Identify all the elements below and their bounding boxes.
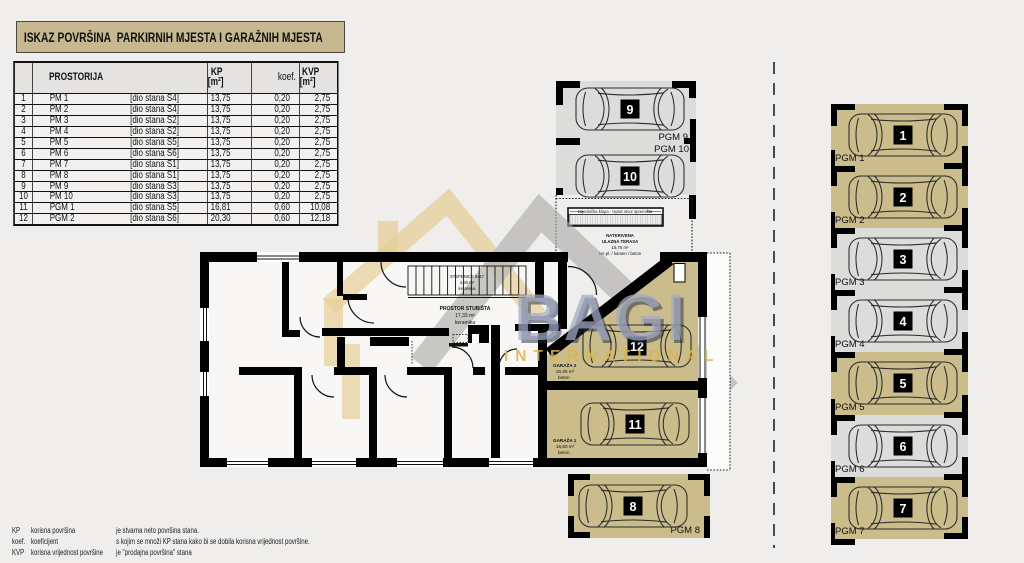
svg-text:ker.pl. / kamen / beton: ker.pl. / kamen / beton <box>599 251 642 256</box>
svg-text:16,80 m²: 16,80 m² <box>556 444 575 449</box>
svg-text:11: 11 <box>628 418 641 432</box>
svg-text:PGM 10: PGM 10 <box>654 144 689 155</box>
svg-text:PGM 1: PGM 1 <box>835 153 865 164</box>
svg-text:GARAŽA 1: GARAŽA 1 <box>553 436 577 443</box>
svg-text:NATKRIVENA: NATKRIVENA <box>606 233 634 238</box>
svg-text:17,33 m²: 17,33 m² <box>455 313 475 319</box>
svg-text:8: 8 <box>630 500 637 514</box>
svg-text:6: 6 <box>900 440 907 454</box>
svg-text:keramika: keramika <box>455 320 476 326</box>
svg-text:20,35 m²: 20,35 m² <box>556 369 575 374</box>
svg-text:16,76 m²: 16,76 m² <box>612 245 630 250</box>
svg-text:9: 9 <box>627 103 634 117</box>
svg-text:STEPENICE 9x17: STEPENICE 9x17 <box>450 274 485 279</box>
svg-text:5: 5 <box>900 377 907 391</box>
svg-text:INTERNATIONAL: INTERNATIONAL <box>504 348 720 365</box>
svg-text:zajednička klupa - ispod otvor: zajednička klupa - ispod otvor spremišta <box>578 209 653 214</box>
svg-text:2: 2 <box>900 191 907 205</box>
svg-text:ULAZNA TERASA: ULAZNA TERASA <box>602 239 638 244</box>
svg-text:beton: beton <box>558 375 570 380</box>
svg-text:keramika: keramika <box>459 286 477 291</box>
svg-text:7: 7 <box>900 502 907 516</box>
svg-text:PGM 3: PGM 3 <box>835 277 865 288</box>
svg-text:1: 1 <box>900 129 907 143</box>
svg-text:PGM 4: PGM 4 <box>835 339 865 350</box>
svg-text:PGM 5: PGM 5 <box>835 402 865 413</box>
svg-text:4,60 m²: 4,60 m² <box>460 280 475 285</box>
svg-text:10: 10 <box>623 170 637 184</box>
svg-text:PGM 9: PGM 9 <box>658 132 688 143</box>
svg-text:PGM 8: PGM 8 <box>670 525 700 536</box>
svg-text:PROSTOR STUBIŠTA: PROSTOR STUBIŠTA <box>440 304 491 312</box>
svg-text:PGM 7: PGM 7 <box>835 526 865 537</box>
svg-text:PGM 6: PGM 6 <box>835 464 865 475</box>
svg-text:3: 3 <box>900 253 907 267</box>
svg-text:beton: beton <box>558 450 570 455</box>
svg-text:4: 4 <box>900 315 907 329</box>
svg-text:PGM 2: PGM 2 <box>835 215 865 226</box>
svg-text:BAGI: BAGI <box>514 280 687 354</box>
